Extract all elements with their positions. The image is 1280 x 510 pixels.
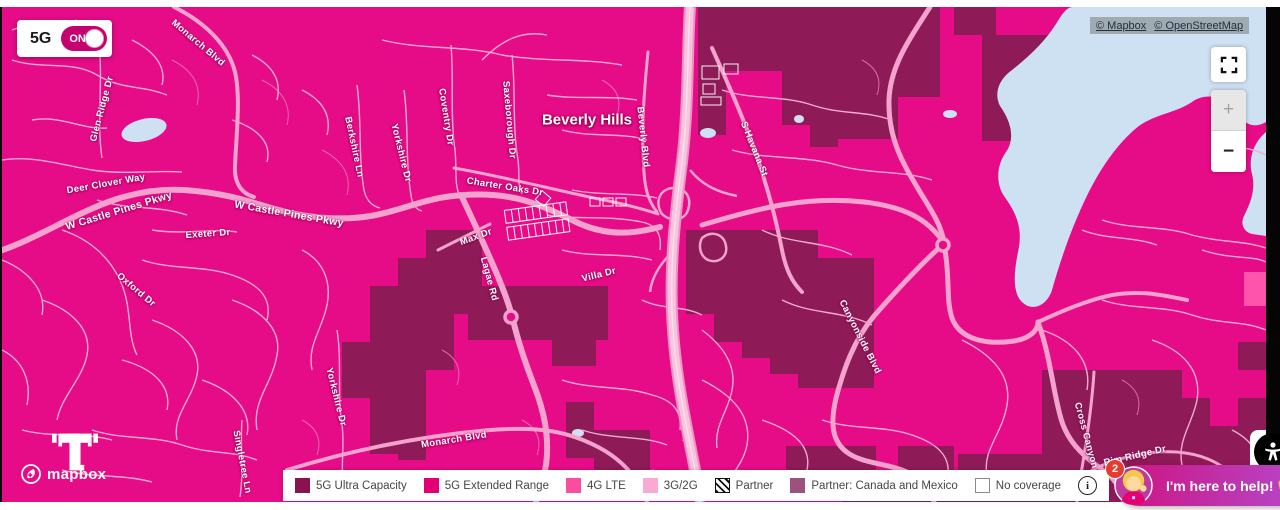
zoom-out-button[interactable]: − — [1211, 131, 1246, 172]
coverage-legend: 5G Ultra Capacity5G Extended Range4G LTE… — [283, 470, 1109, 501]
right-border — [1266, 7, 1280, 502]
5g-toggle-card: 5G ON — [17, 20, 112, 57]
legend-swatch — [424, 478, 439, 493]
legend-swatch — [975, 478, 990, 493]
mapbox-icon — [20, 463, 42, 485]
legend-label: 4G LTE — [587, 480, 626, 492]
legend-label: Partner — [736, 480, 774, 492]
fullscreen-button[interactable] — [1211, 47, 1246, 82]
mapbox-wordmark: mapbox — [47, 466, 106, 483]
legend-item: 5G Ultra Capacity — [295, 478, 407, 493]
legend-label: 3G/2G — [664, 480, 698, 492]
legend-item: No coverage — [975, 478, 1061, 493]
map-attribution: © Mapbox © OpenStreetMap — [1090, 17, 1249, 34]
legend-swatch — [643, 478, 658, 493]
5g-toggle-switch[interactable]: ON — [61, 26, 107, 51]
zoom-in-button[interactable]: + — [1211, 90, 1246, 131]
legend-item: Partner — [715, 478, 774, 493]
legend-swatch — [295, 478, 310, 493]
legend-item: 3G/2G — [643, 478, 698, 493]
chat-unread-badge: 2 — [1105, 459, 1125, 479]
coverage-map-page: { "toggle": { "label": "5G", "state": "O… — [0, 0, 1280, 510]
legend-item: Partner: Canada and Mexico — [790, 478, 957, 493]
legend-label: 5G Extended Range — [445, 480, 549, 492]
fullscreen-icon — [1218, 54, 1240, 76]
left-border — [0, 7, 2, 502]
legend-items: 5G Ultra Capacity5G Extended Range4G LTE… — [295, 478, 1078, 493]
5g-toggle-label: 5G — [30, 30, 51, 48]
legend-swatch — [715, 478, 730, 493]
legend-label: 5G Ultra Capacity — [316, 480, 407, 492]
lte-patch — [1244, 272, 1266, 306]
legend-swatch — [790, 478, 805, 493]
legend-label: No coverage — [996, 480, 1061, 492]
toggle-state-text: ON — [69, 33, 86, 45]
mapbox-logo[interactable]: mapbox — [20, 463, 106, 485]
legend-item: 5G Extended Range — [424, 478, 549, 493]
mapbox-attribution-link[interactable]: © Mapbox — [1096, 20, 1146, 32]
map-graphics — [2, 7, 1266, 502]
accessibility-person-icon — [1261, 440, 1280, 464]
info-icon[interactable]: i — [1078, 476, 1097, 495]
legend-swatch — [566, 478, 581, 493]
legend-item: 4G LTE — [566, 478, 626, 493]
place-label-beverly-hills: Beverly Hills — [542, 112, 632, 129]
coverage-map-canvas[interactable]: Monarch BlvdGlen Ridge DrDeer Clover Way… — [2, 7, 1266, 502]
zoom-control: + − — [1211, 90, 1246, 172]
legend-label: Partner: Canada and Mexico — [811, 480, 957, 492]
chat-message: I'm here to help! — [1166, 478, 1274, 494]
toggle-knob — [85, 29, 104, 48]
osm-attribution-link[interactable]: © OpenStreetMap — [1154, 20, 1243, 32]
